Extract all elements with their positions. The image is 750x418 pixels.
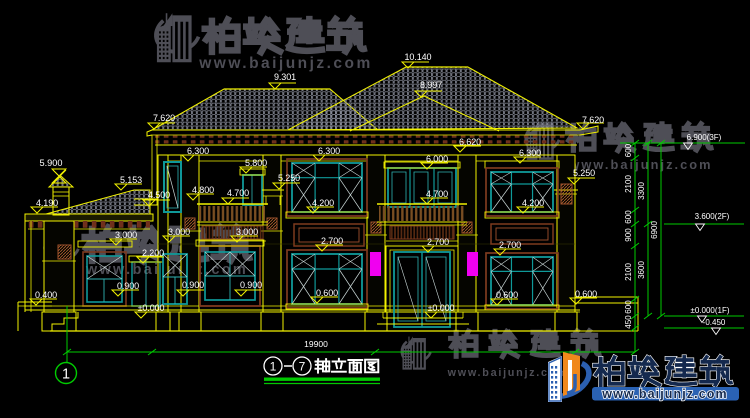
svg-text:0.600: 0.600: [496, 290, 518, 300]
svg-text:6.300: 6.300: [519, 148, 541, 158]
svg-text:6.900(3F): 6.900(3F): [687, 133, 722, 142]
svg-text:5.250: 5.250: [278, 173, 300, 183]
svg-text:5.250: 5.250: [573, 168, 595, 178]
svg-text:±0.000: ±0.000: [428, 303, 455, 313]
svg-text:4.200: 4.200: [522, 198, 544, 208]
svg-text:2.700: 2.700: [321, 236, 343, 246]
svg-text:5.800: 5.800: [245, 158, 267, 168]
svg-text:6900: 6900: [650, 221, 659, 239]
svg-text:0.900: 0.900: [240, 280, 262, 290]
svg-text:3.600(2F): 3.600(2F): [695, 212, 730, 221]
svg-text:0.400: 0.400: [35, 290, 57, 300]
svg-text:2.700: 2.700: [499, 240, 521, 250]
svg-text:0.600: 0.600: [575, 289, 597, 299]
svg-text:6.620: 6.620: [459, 137, 481, 147]
svg-text:±0.000(1F): ±0.000(1F): [690, 306, 729, 315]
svg-text:0.900: 0.900: [182, 280, 204, 290]
svg-text:8.997: 8.997: [420, 80, 442, 90]
svg-text:www.baijunjz.com: www.baijunjz.com: [198, 55, 372, 72]
svg-text:2.700: 2.700: [427, 237, 449, 247]
svg-text:4.800: 4.800: [192, 185, 214, 195]
svg-text:7: 7: [299, 360, 306, 374]
svg-text:10.140: 10.140: [405, 52, 432, 62]
svg-text:±0.000: ±0.000: [138, 303, 165, 313]
svg-text:600: 600: [624, 210, 633, 224]
svg-text:5.900: 5.900: [40, 158, 63, 168]
svg-text:19900: 19900: [304, 339, 328, 349]
svg-text:4.500: 4.500: [148, 190, 170, 200]
svg-text:-0.450: -0.450: [703, 318, 726, 327]
svg-text:9.301: 9.301: [274, 72, 296, 82]
svg-text:3.000: 3.000: [168, 227, 190, 237]
svg-text:6.300: 6.300: [187, 146, 209, 156]
svg-text:4.190: 4.190: [36, 198, 58, 208]
svg-text:www.baijunjz.com: www.baijunjz.com: [601, 387, 727, 401]
svg-text:6.300: 6.300: [318, 146, 340, 156]
svg-text:5.153: 5.153: [120, 175, 142, 185]
svg-text:7.620: 7.620: [582, 115, 604, 125]
svg-text:600: 600: [624, 300, 633, 314]
svg-text:4.700: 4.700: [227, 188, 249, 198]
svg-text:0.900: 0.900: [117, 281, 139, 291]
svg-text:450: 450: [624, 315, 633, 329]
svg-text:900: 900: [624, 228, 633, 242]
svg-text:0.600: 0.600: [316, 288, 338, 298]
svg-text:3300: 3300: [637, 182, 646, 200]
svg-text:7.620: 7.620: [153, 113, 175, 123]
svg-text:3.000: 3.000: [236, 227, 258, 237]
svg-text:4.200: 4.200: [312, 198, 334, 208]
svg-text:6.000: 6.000: [426, 154, 448, 164]
svg-text:1: 1: [62, 367, 70, 383]
svg-text:600: 600: [624, 143, 633, 157]
svg-text:2100: 2100: [624, 263, 633, 281]
svg-text:4.700: 4.700: [426, 189, 448, 199]
svg-text:2100: 2100: [624, 175, 633, 193]
svg-text:3.000: 3.000: [115, 230, 137, 240]
svg-text:2.200: 2.200: [142, 248, 164, 258]
svg-text:1: 1: [270, 360, 277, 374]
svg-text:3600: 3600: [637, 261, 646, 279]
